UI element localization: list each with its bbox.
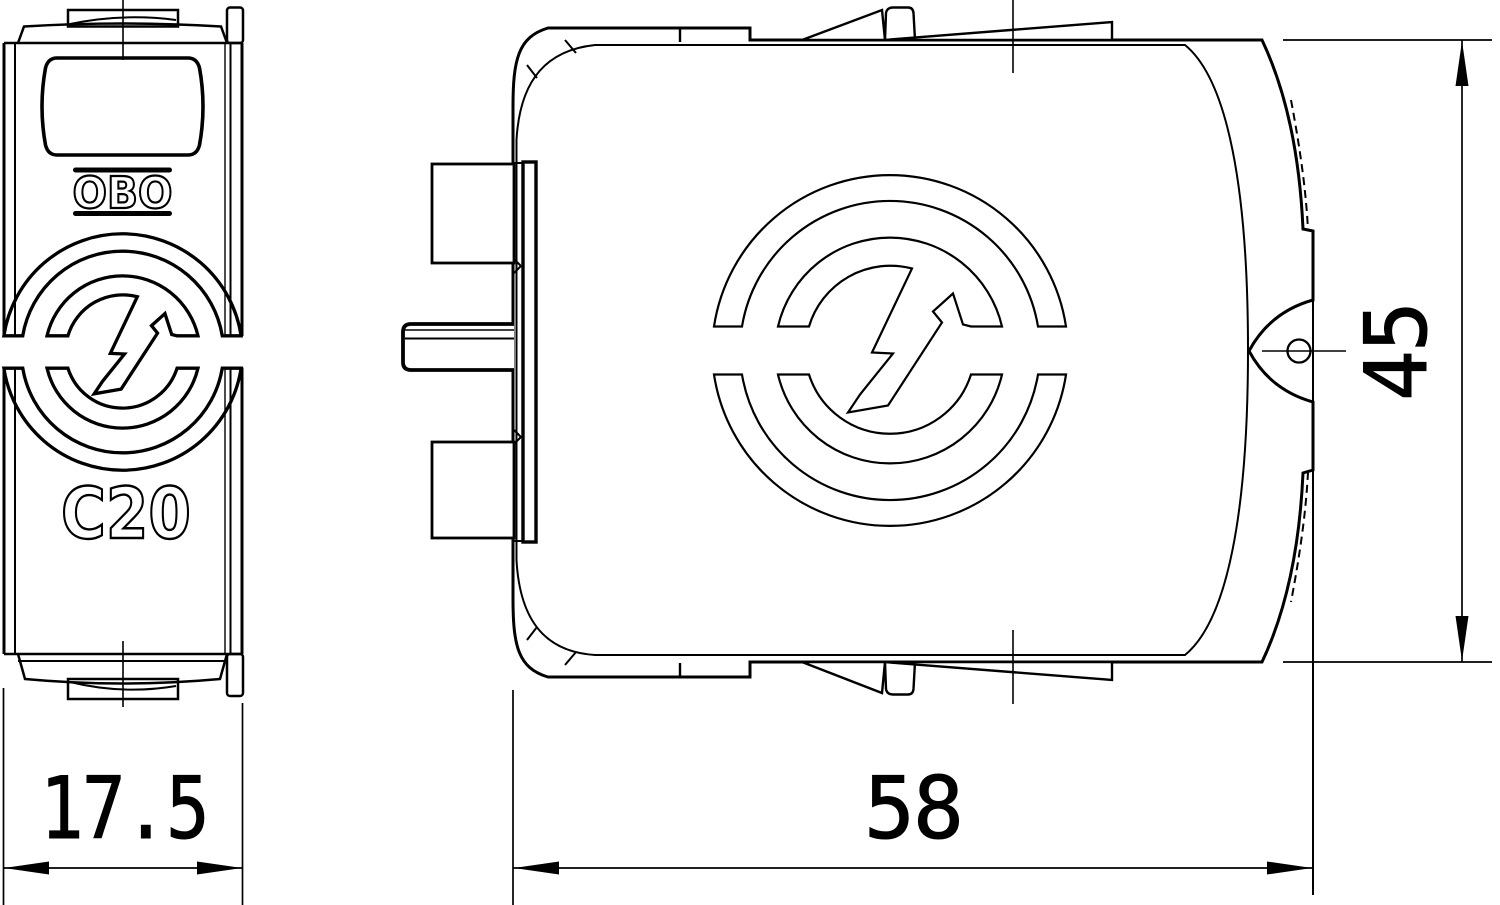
technical-drawing-page: OBO C20 xyxy=(0,0,1500,905)
type-label: C20 xyxy=(61,473,191,555)
top-right-clip-tab xyxy=(227,8,243,44)
grip-serration-bottom xyxy=(1291,472,1308,602)
top-retaining-clips xyxy=(802,8,1112,41)
top-clip-wedge xyxy=(884,22,1112,40)
bottom-clip-bump xyxy=(885,662,915,695)
obo-bottom-bar xyxy=(73,211,172,216)
seam-tick-top-1 xyxy=(527,65,537,78)
arrowhead-right xyxy=(1267,862,1312,875)
dim-label-height: 45 xyxy=(1347,303,1447,401)
bottom-retaining-clips xyxy=(802,662,1112,695)
plug-pin xyxy=(403,324,514,370)
bottom-right-clip-tab xyxy=(227,654,243,696)
obo-wordmark-block: OBO xyxy=(73,168,173,220)
top-clip-triangle xyxy=(802,10,885,40)
arrowhead-left xyxy=(514,862,559,875)
bottom-clip-triangle xyxy=(802,662,885,693)
latch-tab-upper xyxy=(432,164,514,263)
housing-outline xyxy=(513,28,1313,677)
seam-tick-bottom-1 xyxy=(527,627,537,640)
bottom-din-flange xyxy=(18,654,243,699)
obo-logo-side xyxy=(714,175,1066,526)
arrowhead-bottom xyxy=(1456,616,1469,661)
top-din-flange xyxy=(18,8,243,44)
dimension-width: 58 xyxy=(513,690,1313,905)
logo-band-gap xyxy=(0,336,248,368)
arrowhead-right xyxy=(197,862,242,875)
seam-tick-bottom-2 xyxy=(565,652,576,665)
test-window xyxy=(42,58,203,155)
top-clip-bump xyxy=(885,8,915,41)
front-view: OBO C20 xyxy=(0,0,248,707)
dim-label-width: 58 xyxy=(864,759,962,859)
dim-label-depth: 17.5 xyxy=(40,759,208,859)
arrowhead-left xyxy=(4,862,49,875)
bottom-clip-wedge xyxy=(884,662,1112,680)
dimension-depth: 17.5 xyxy=(4,688,243,905)
grip-serration-top xyxy=(1291,100,1308,230)
cover-seam xyxy=(517,45,1249,655)
release-lever xyxy=(523,162,536,542)
dimension-drawing: OBO C20 xyxy=(0,0,1500,905)
arrowhead-top xyxy=(1456,41,1469,86)
latch-tab-lower xyxy=(432,442,514,538)
